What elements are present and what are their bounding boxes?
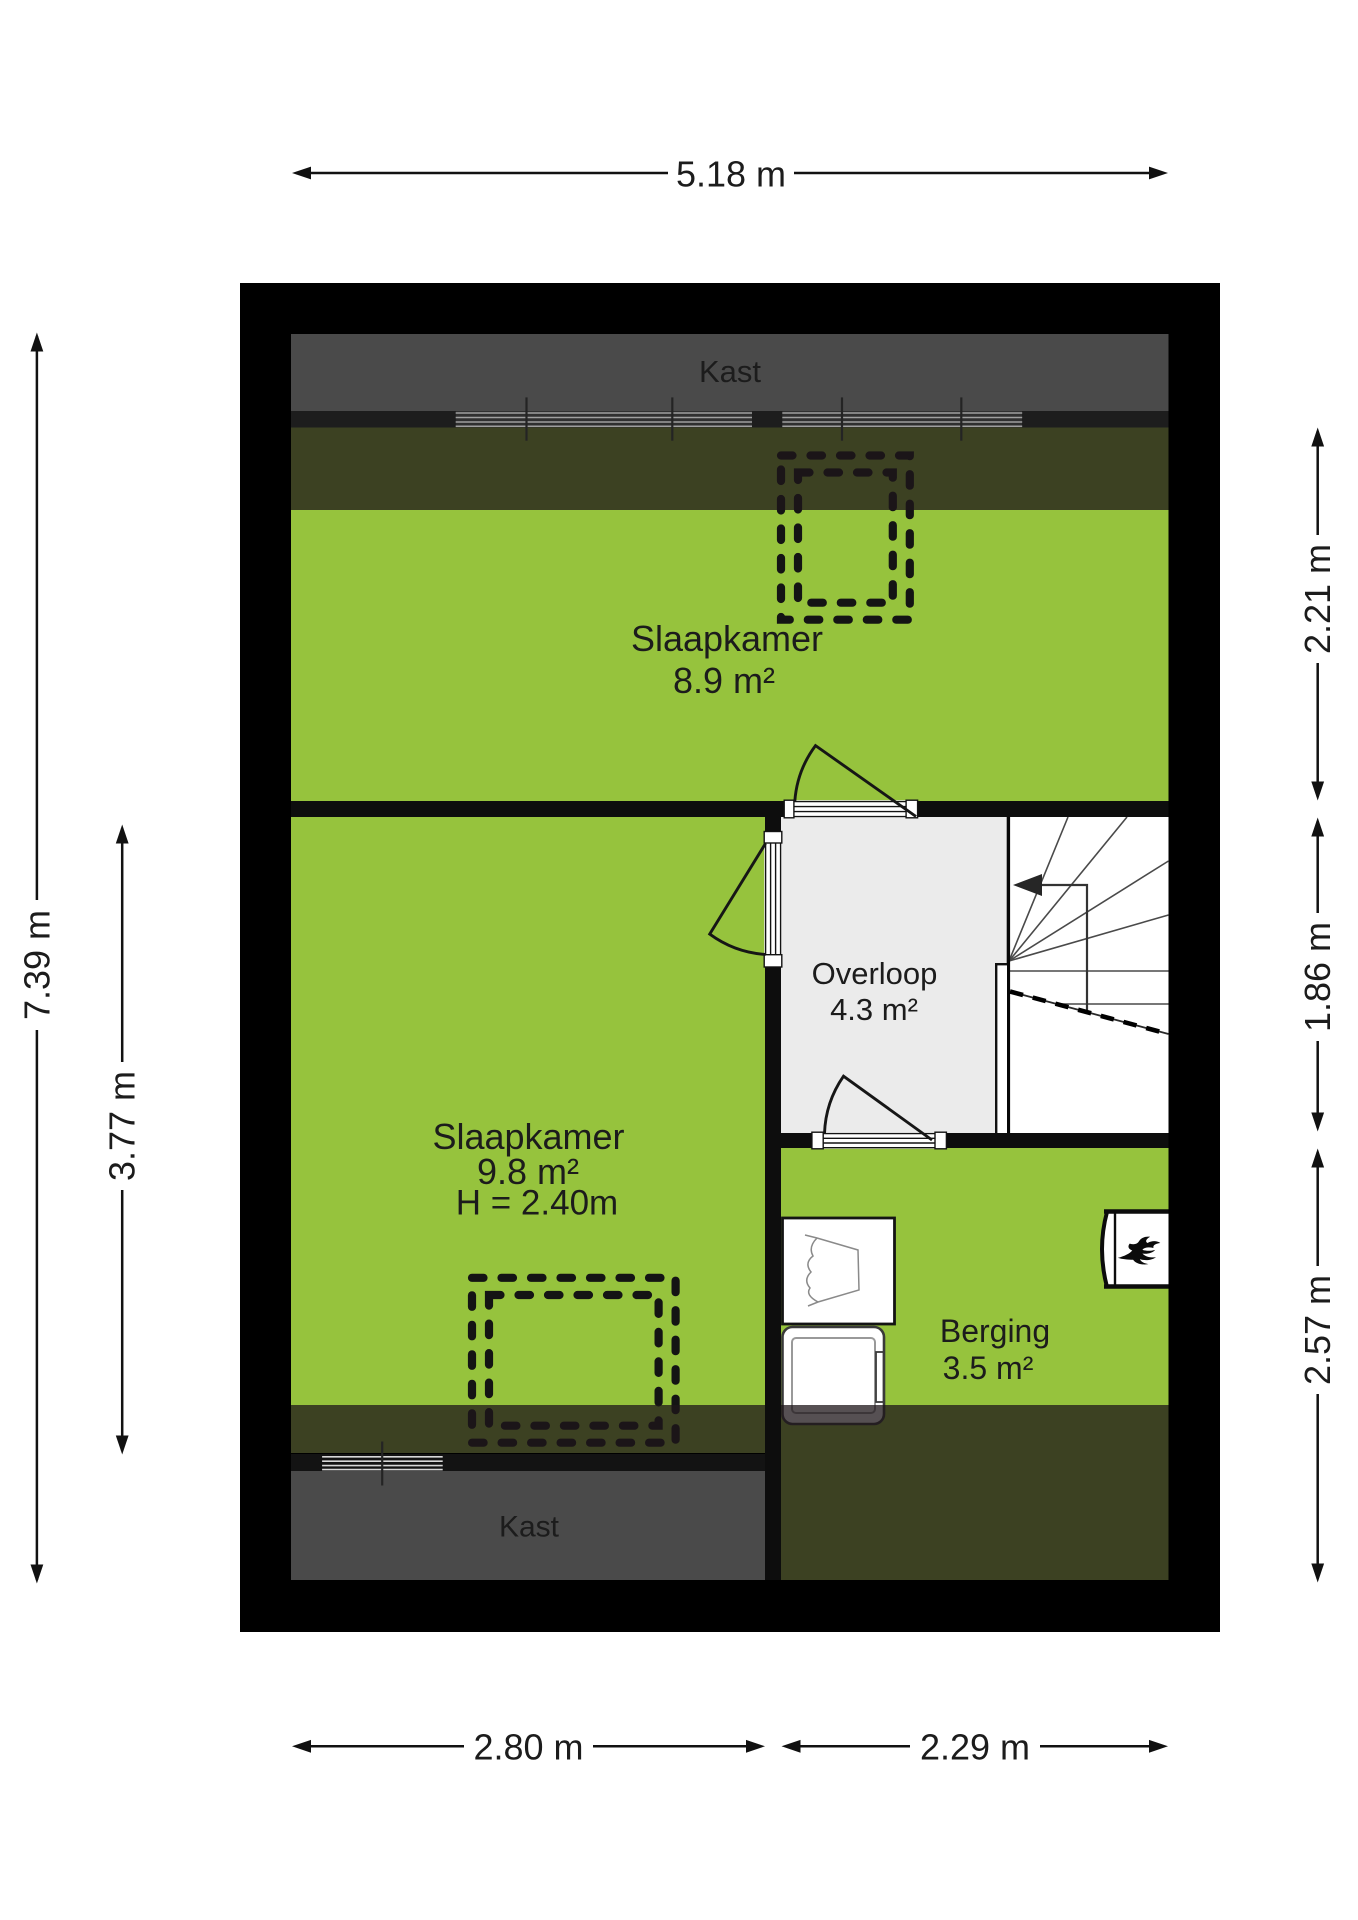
svg-text:3.5 m²: 3.5 m²	[943, 1350, 1034, 1386]
svg-text:2.21 m: 2.21 m	[1297, 544, 1338, 654]
svg-text:8.9 m²: 8.9 m²	[673, 660, 775, 701]
svg-text:H = 2.40m: H = 2.40m	[456, 1184, 618, 1223]
svg-text:7.39 m: 7.39 m	[16, 910, 57, 1020]
svg-text:Overloop: Overloop	[812, 956, 938, 991]
svg-text:4.3 m²: 4.3 m²	[830, 992, 918, 1027]
svg-text:5.18 m: 5.18 m	[676, 154, 786, 195]
svg-text:Kast: Kast	[499, 1511, 560, 1544]
svg-text:3.77 m: 3.77 m	[102, 1071, 143, 1181]
svg-text:Berging: Berging	[940, 1313, 1050, 1349]
svg-text:2.57 m: 2.57 m	[1297, 1275, 1338, 1385]
svg-text:2.80 m: 2.80 m	[473, 1727, 583, 1768]
svg-text:Slaapkamer: Slaapkamer	[631, 618, 823, 659]
svg-text:2.29 m: 2.29 m	[920, 1727, 1030, 1768]
svg-text:1.86 m: 1.86 m	[1297, 922, 1338, 1032]
svg-text:Kast: Kast	[699, 354, 761, 389]
